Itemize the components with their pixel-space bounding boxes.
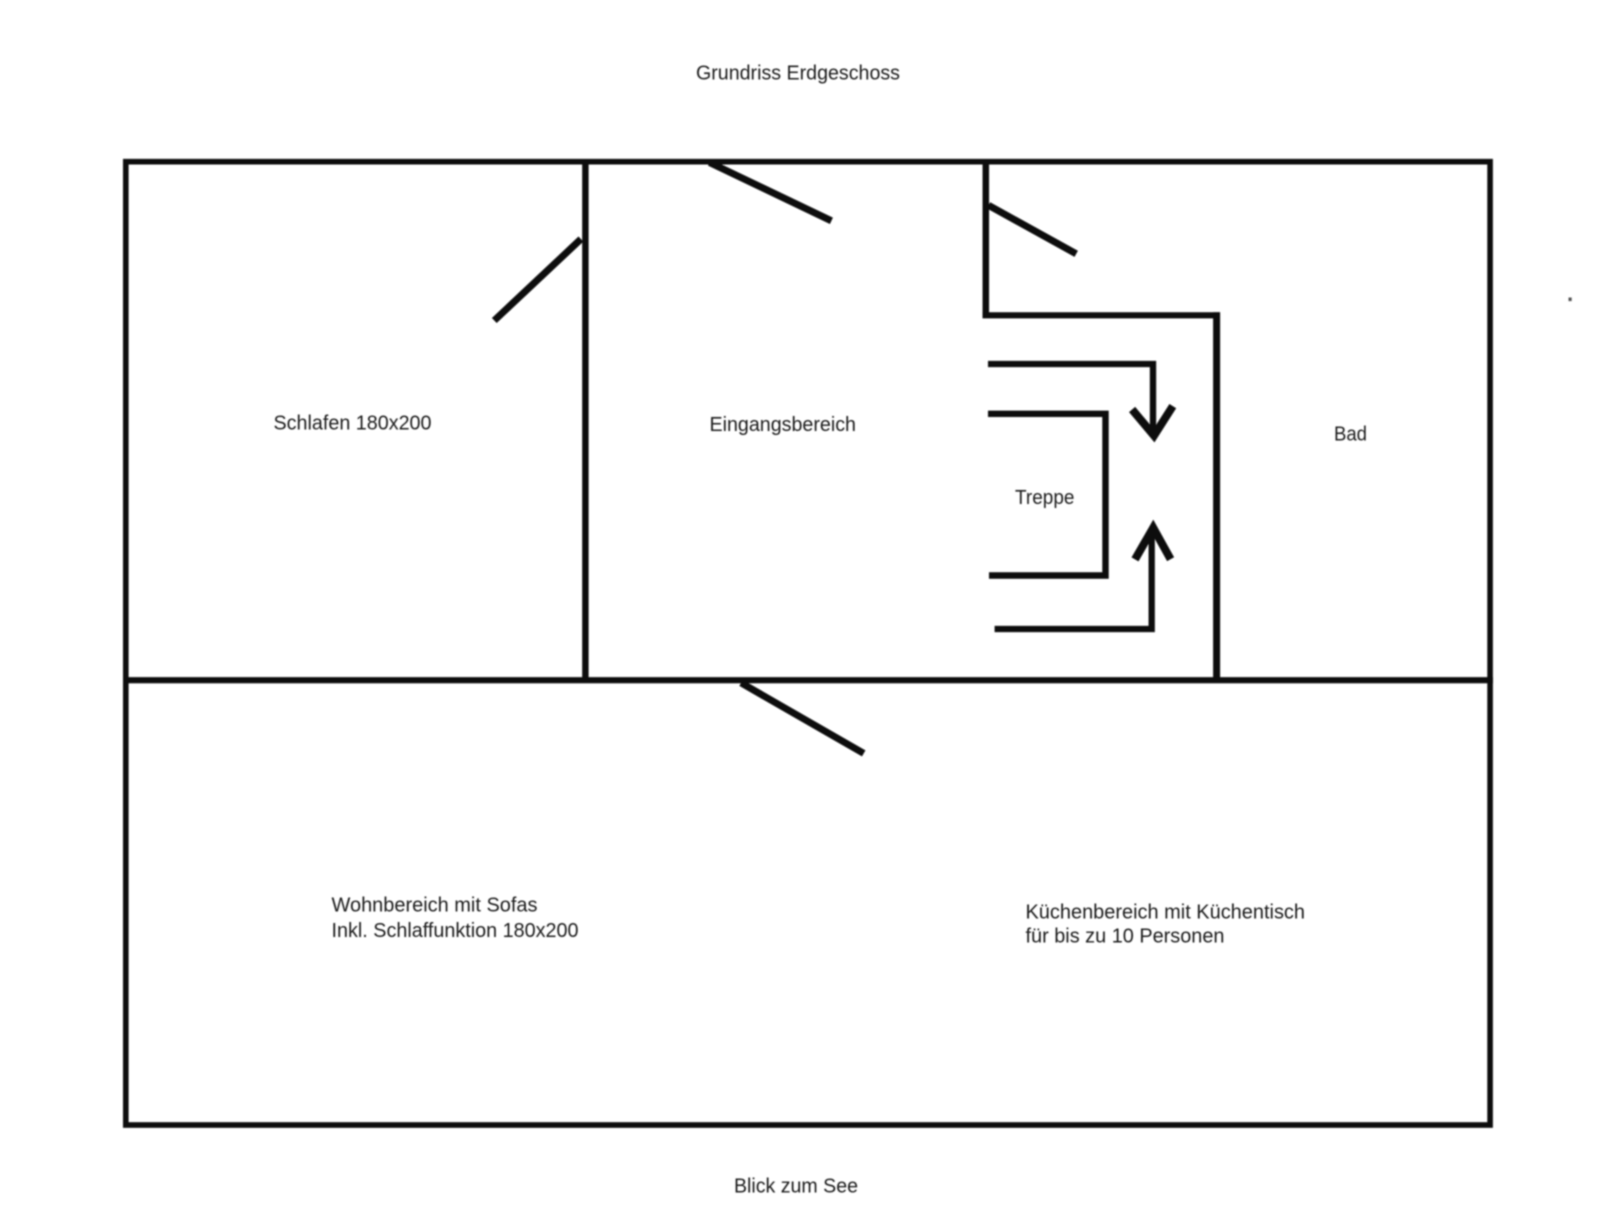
svg-text:Bad: Bad [1334,424,1367,446]
svg-text:für bis zu 10 Personen: für bis zu 10 Personen [1026,926,1225,948]
svg-text:Küchenbereich mit Küchentisch: Küchenbereich mit Küchentisch [1026,902,1306,924]
svg-text:Grundriss Erdgeschoss: Grundriss Erdgeschoss [696,63,900,85]
svg-text:Treppe: Treppe [1015,487,1075,509]
svg-text:Eingangsbereich: Eingangsbereich [710,414,857,436]
svg-text:Inkl. Schlaffunktion 180x200: Inkl. Schlaffunktion 180x200 [332,920,579,942]
svg-text:Blick zum See: Blick zum See [734,1176,858,1198]
svg-text:Wohnbereich mit Sofas: Wohnbereich mit Sofas [332,895,538,917]
svg-text:Schlafen 180x200: Schlafen 180x200 [274,413,432,435]
